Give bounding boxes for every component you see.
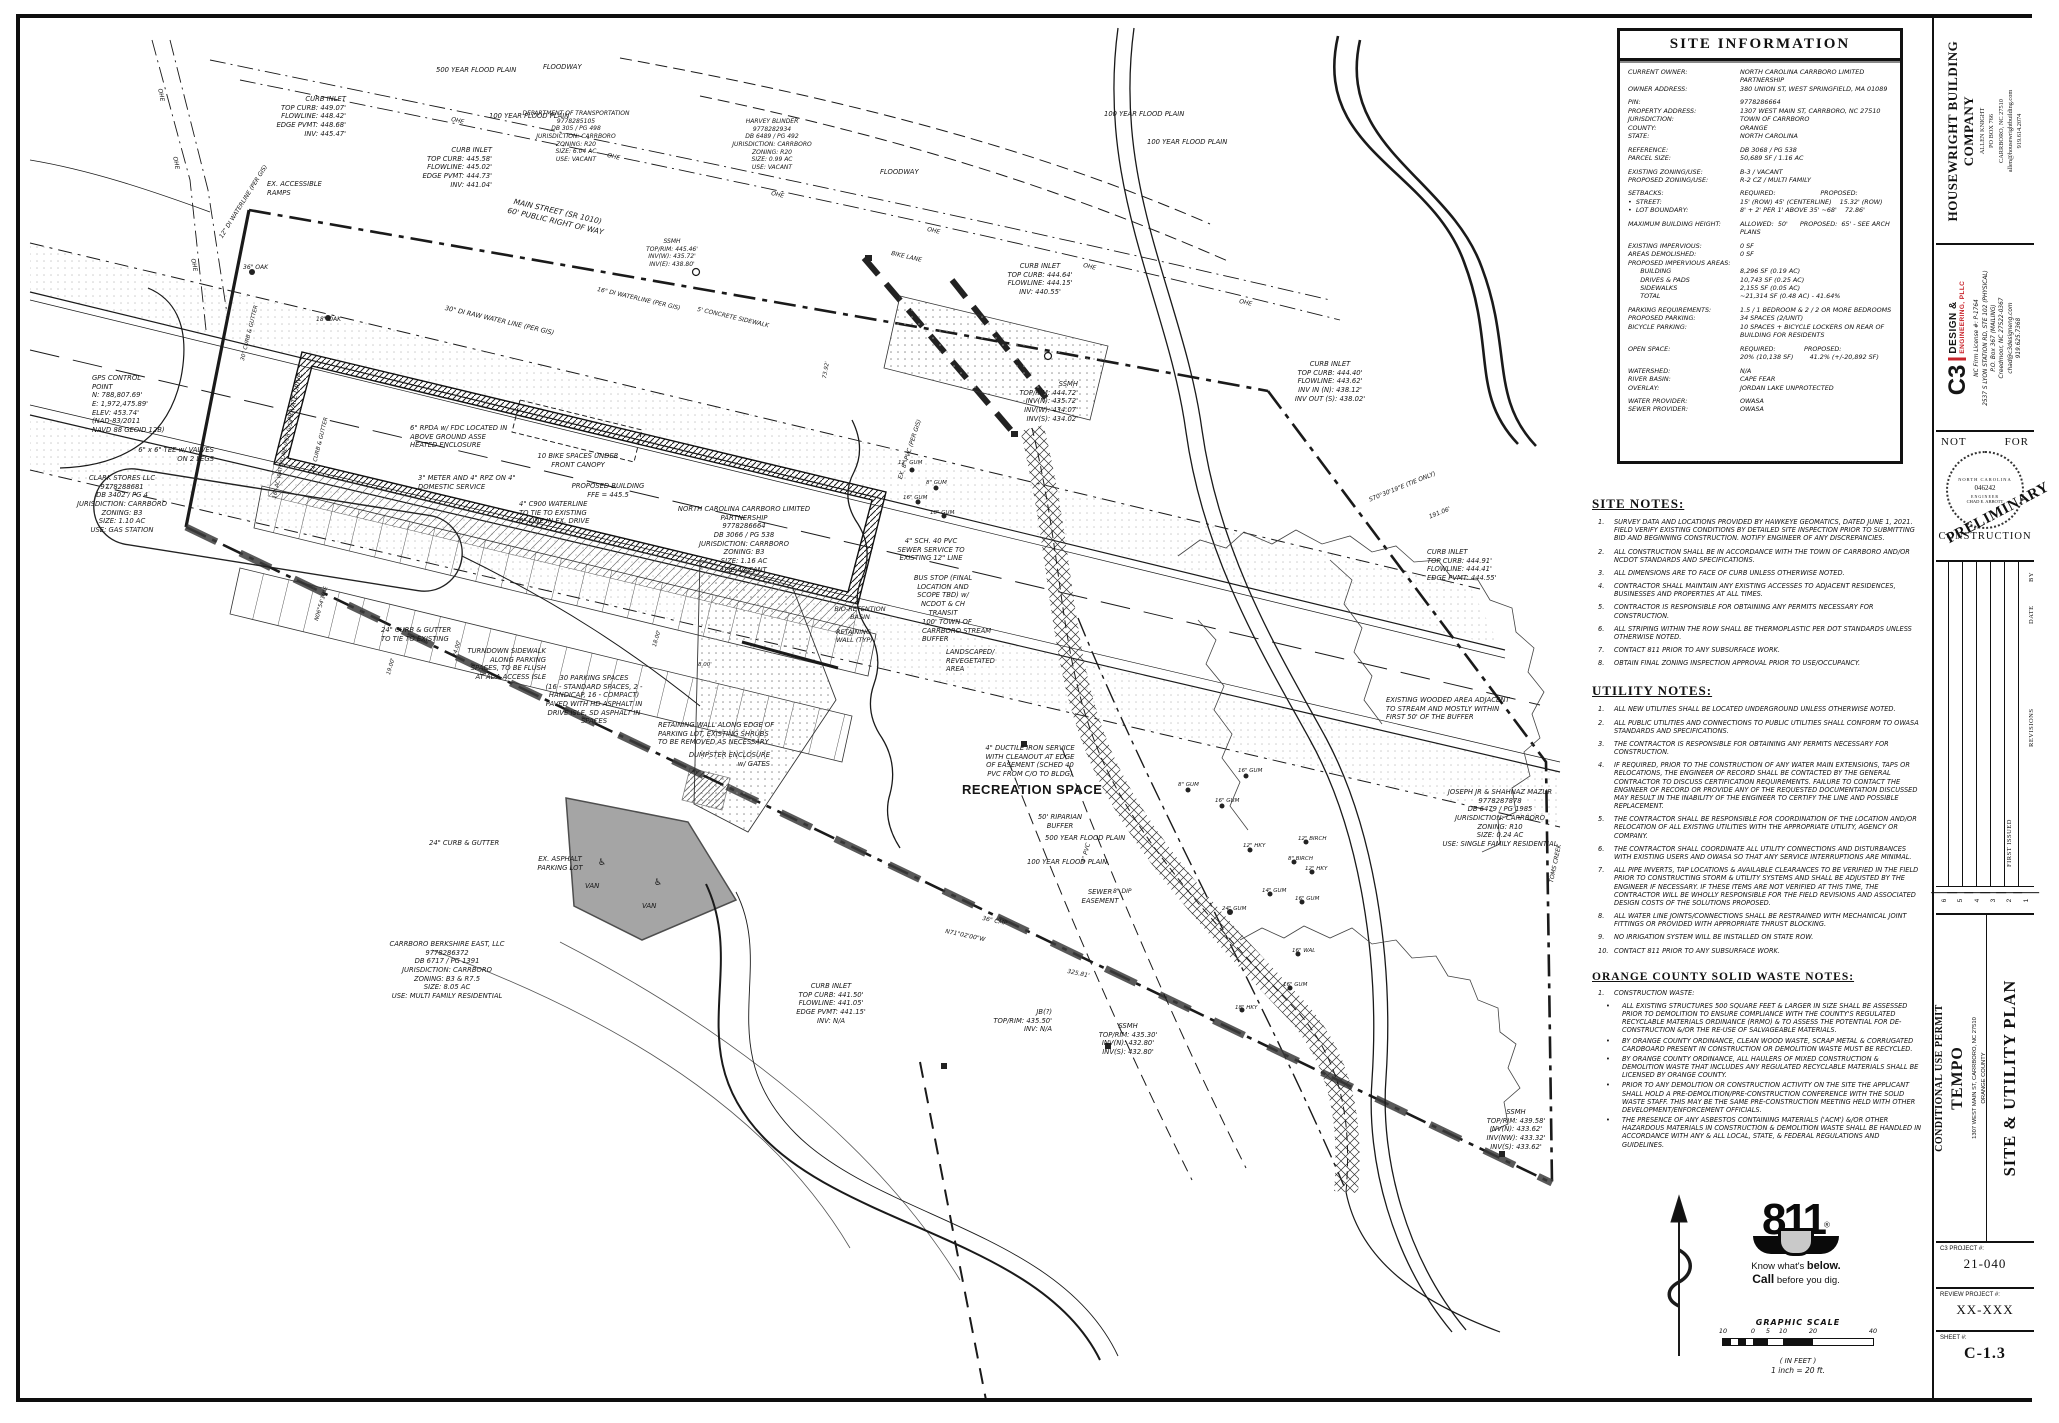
engineer-block: C3 DESIGN & ENGINEERING, PLLC NC Firm Li… [1936, 245, 2034, 432]
client-block: HOUSEWRIGHT BUILDING COMPANY ALLEN KNIGH… [1936, 18, 2034, 245]
sheet-number-label: SHEET #: [1940, 1335, 1967, 1341]
waste-notes-section: ORANGE COUNTY SOLID WASTE NOTES: 1.CONST… [1592, 971, 1922, 1149]
site-information-panel: SITE INFORMATION CURRENT OWNER:NORTH CAR… [1617, 28, 1903, 464]
graphic-scale-bar [1722, 1338, 1874, 1346]
client-name: HOUSEWRIGHT BUILDING COMPANY [1945, 17, 1978, 244]
revision-row-numbers: 654321 [1936, 886, 2034, 913]
notes-column: SITE NOTES: 1.SURVEY DATA AND LOCATIONS … [1592, 496, 1922, 1165]
stamp-for: FOR [2005, 436, 2029, 448]
waste-notes-list: 1.CONSTRUCTION WASTE:•ALL EXISTING STRUC… [1592, 989, 1922, 1149]
sheet-number-box: SHEET #: C-1.3 [1936, 1332, 2034, 1398]
graphic-scale: GRAPHIC SCALE 1005102040 ( IN FEET ) 1 i… [1718, 1318, 1878, 1375]
logo-811-tagline2: Call before you dig. [1716, 1272, 1876, 1286]
engineer-phone: 919.625.7368 [2015, 317, 2023, 358]
seal-state: NORTH CAROLINA [1958, 477, 2012, 482]
graphic-scale-equation: 1 inch = 20 ft. [1718, 1366, 1878, 1375]
client-phone: 919.614.2074 [2015, 113, 2024, 148]
engineer-address-mailing: P.O. Box 367 (MAILING) [1990, 304, 1998, 371]
review-project-number-box: REVIEW PROJECT #: XX-XXX [1936, 1289, 2034, 1332]
client-address: PO BOX 766 [1987, 114, 1996, 148]
logo-811-scoop [1753, 1236, 1839, 1254]
project-block: CONDITIONAL USE PERMIT TEMPO 1307 WEST M… [1936, 915, 2034, 1243]
review-project-value: XX-XXX [1936, 1302, 2034, 1318]
engineer-email: chad@c3designeng.com [2007, 302, 2015, 373]
shovel-icon [1778, 1228, 1814, 1256]
c3-logo-engineering: ENGINEERING, PLLC [1959, 280, 1966, 353]
c3-logo-mark: C3 [1947, 364, 1969, 395]
revisions-col-date: DATE [2028, 605, 2035, 624]
waste-notes-title: ORANGE COUNTY SOLID WASTE NOTES: [1592, 971, 1922, 983]
client-city: CARRBORO, NC 27510 [1997, 99, 2006, 163]
project-address: 1307 WEST MAIN ST, CARRBORO, NC 27510 [1970, 1017, 1979, 1139]
site-notes-title: SITE NOTES: [1592, 496, 1922, 512]
utility-notes-list: 1.ALL NEW UTILITIES SHALL BE LOCATED UND… [1592, 705, 1922, 954]
titleblock-divider [1932, 18, 1934, 1398]
logo-811-registered: ® [1824, 1221, 1830, 1230]
sheet-title: SITE & UTILITY PLAN [2000, 980, 2020, 1177]
stamp-block: NOT FOR NORTH CAROLINA 046242 ENGINEER C… [1936, 432, 2034, 562]
site-info-rows: CURRENT OWNER:NORTH CAROLINA CARRBORO LI… [1620, 61, 1900, 414]
engineer-address-physical: 2537 S LYON STATION RD, STE 102 (PHYSICA… [1982, 270, 1990, 406]
project-name: TEMPO [1948, 1046, 1966, 1110]
client-email: allen@housewrightbuilding.com [2006, 89, 2015, 172]
seal-number: 046242 [1975, 484, 1996, 492]
revisions-col-by: BY [2028, 572, 2035, 582]
utility-notes-title: UTILITY NOTES: [1592, 683, 1922, 699]
c3-logo-design: DESIGN & [1948, 280, 1959, 353]
c3-logo: C3 DESIGN & ENGINEERING, PLLC [1947, 280, 1969, 395]
stamp-not: NOT [1941, 436, 1967, 448]
sheet-number-value: C-1.3 [1936, 1345, 2034, 1363]
utility-notes-section: UTILITY NOTES: 1.ALL NEW UTILITIES SHALL… [1592, 683, 1922, 954]
graphic-scale-title: GRAPHIC SCALE [1718, 1318, 1878, 1327]
c3-project-number-box: C3 PROJECT #: 21-040 [1936, 1243, 2034, 1289]
c3-project-value: 21-040 [1936, 1256, 2034, 1272]
c3-project-label: C3 PROJECT #: [1940, 1246, 1984, 1252]
graphic-scale-units: ( IN FEET ) [1718, 1357, 1878, 1365]
logo-811-tagline1: Know what's below. [1716, 1260, 1876, 1272]
plan-sheet: 500 YEAR FLOOD PLAIN100 YEAR FLOOD PLAIN… [0, 0, 2059, 1423]
project-permit-type: CONDITIONAL USE PERMIT [1933, 1004, 1944, 1152]
engineer-city: Creedmoor, NC 27522-0367 [1998, 297, 2006, 378]
client-contact: ALLEN KNIGHT [1978, 107, 1987, 153]
site-notes-list: 1.SURVEY DATA AND LOCATIONS PROVIDED BY … [1592, 518, 1922, 667]
site-notes-section: SITE NOTES: 1.SURVEY DATA AND LOCATIONS … [1592, 496, 1922, 667]
engineer-license: NC Firm License #: P-1764 [1973, 299, 1981, 376]
review-project-label: REVIEW PROJECT #: [1940, 1292, 2000, 1298]
logo-811: 811® Know what's below. Call before you … [1716, 1200, 1876, 1286]
revisions-block: BY DATE REVISIONS FIRST ISSUED 654321 [1936, 562, 2034, 915]
graphic-scale-ticks: 1005102040 [1723, 1346, 1873, 1354]
revisions-col-revisions: REVISIONS [2028, 709, 2035, 747]
site-information-title: SITE INFORMATION [1620, 31, 1900, 61]
revisions-first-issued: FIRST ISSUED [2006, 819, 2013, 867]
pe-seal: NORTH CAROLINA 046242 ENGINEER CHAD E. A… [1946, 451, 2024, 529]
